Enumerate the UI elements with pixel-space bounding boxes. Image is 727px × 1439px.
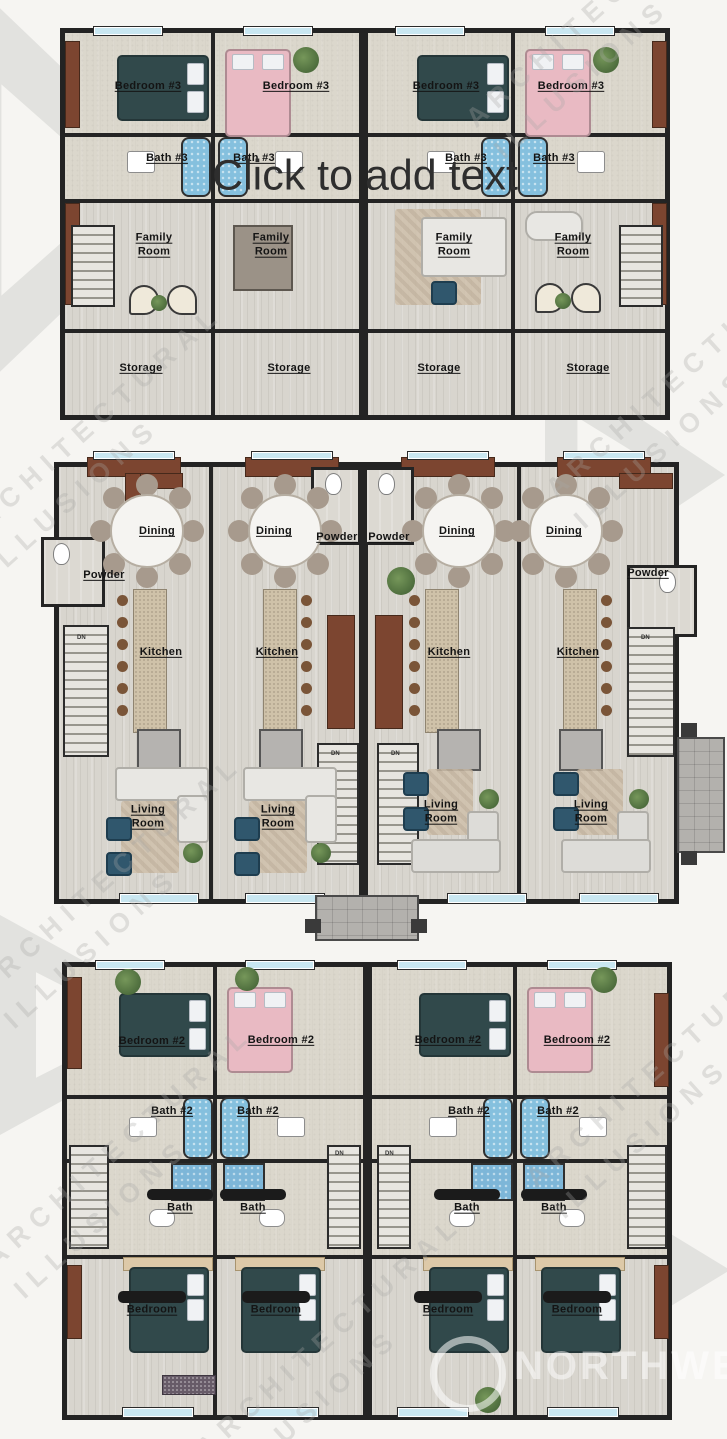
window xyxy=(407,451,489,460)
stair-direction: DN xyxy=(77,635,86,641)
sectional-chaise xyxy=(177,795,209,843)
room-label-powder: Powder xyxy=(368,530,410,544)
bathtub xyxy=(181,137,211,197)
plant xyxy=(629,789,649,809)
closet xyxy=(654,1265,669,1339)
room-label-living: LivingRoom xyxy=(261,803,295,832)
vanity-sink xyxy=(579,1117,607,1137)
label-smudge xyxy=(414,1291,482,1303)
window xyxy=(93,26,163,36)
room-label-bath2: Bath #2 xyxy=(537,1104,579,1118)
toilet xyxy=(325,473,342,495)
room-label-bedroom3: Bedroom #3 xyxy=(413,79,480,93)
hearth xyxy=(259,729,303,771)
room-label-dining: Dining xyxy=(256,524,292,538)
armchair-blue xyxy=(106,817,132,841)
room-label-living: LivingRoom xyxy=(131,803,165,832)
armchair-blue xyxy=(234,817,260,841)
plant xyxy=(293,47,319,73)
window xyxy=(397,960,467,970)
vanity-sink xyxy=(129,1117,157,1137)
plant-table xyxy=(555,293,571,309)
room-label-powder: Powder xyxy=(316,530,358,544)
room-label-storage: Storage xyxy=(566,361,609,375)
stair-direction: DN xyxy=(331,751,340,757)
pillow xyxy=(187,1274,204,1296)
pillow xyxy=(189,1028,206,1050)
room-label-living: LivingRoom xyxy=(574,798,608,827)
room-label-storage: Storage xyxy=(119,361,162,375)
pillow xyxy=(187,91,204,113)
label-smudge xyxy=(543,1291,611,1303)
plant xyxy=(591,967,617,993)
room-label-powder: Powder xyxy=(83,568,125,582)
room-label-bath2: Bath #2 xyxy=(151,1104,193,1118)
kitchen-island xyxy=(133,589,167,733)
bed xyxy=(419,993,511,1057)
armchair-blue xyxy=(234,852,260,876)
window xyxy=(447,893,527,904)
plant xyxy=(479,789,499,809)
porch-post xyxy=(681,723,697,737)
wall xyxy=(213,967,217,1415)
porch-pavers xyxy=(315,895,419,941)
sectional-chaise xyxy=(305,795,337,843)
staircase xyxy=(627,627,675,757)
text-placeholder[interactable]: Click to add text xyxy=(212,152,518,201)
armchair-blue xyxy=(403,772,429,796)
room-label-dining: Dining xyxy=(439,524,475,538)
pantry xyxy=(375,615,403,729)
pillow xyxy=(232,54,254,70)
toilet xyxy=(378,473,395,495)
sectional-sofa xyxy=(561,839,651,873)
staircase xyxy=(327,1145,361,1249)
stair-direction: DN xyxy=(335,1151,344,1157)
window xyxy=(395,26,465,36)
window xyxy=(119,893,199,904)
room-label-bedroom2: Bedroom #2 xyxy=(415,1033,482,1047)
pillow xyxy=(564,992,586,1008)
pillow xyxy=(187,63,204,85)
armchair-blue xyxy=(431,281,457,305)
plant xyxy=(387,567,415,595)
dresser xyxy=(162,1375,216,1395)
staircase xyxy=(71,225,115,307)
room-label-dining: Dining xyxy=(546,524,582,538)
window xyxy=(251,451,333,460)
room-label-bedroom3: Bedroom #3 xyxy=(263,79,330,93)
room-label-bath3: Bath #3 xyxy=(146,151,188,165)
plant xyxy=(115,969,141,995)
room-label-storage: Storage xyxy=(417,361,460,375)
room-label-kitchen: Kitchen xyxy=(140,645,182,659)
porch-post xyxy=(411,919,427,933)
vanity-sink xyxy=(577,151,605,173)
pillow xyxy=(489,1028,506,1050)
bathtub xyxy=(518,137,548,197)
staircase xyxy=(377,1145,411,1249)
room-label-bath2: Bath #2 xyxy=(237,1104,279,1118)
kitchen-island xyxy=(425,589,459,733)
room-label-bath2: Bath #2 xyxy=(448,1104,490,1118)
staircase xyxy=(63,625,109,757)
window xyxy=(545,26,615,36)
party-wall xyxy=(363,967,372,1415)
floor-plan-second[interactable]: DN DN Bedroom #2 Bedroom #2 xyxy=(62,962,672,1420)
label-smudge xyxy=(220,1189,286,1200)
pillow xyxy=(534,992,556,1008)
pillow xyxy=(489,1000,506,1022)
window xyxy=(547,1407,619,1418)
pillow xyxy=(187,1299,204,1321)
bar-stools xyxy=(409,595,420,606)
stair-direction: DN xyxy=(391,751,400,757)
armchair xyxy=(167,285,197,315)
bar-stools xyxy=(601,595,612,606)
wall xyxy=(67,1159,667,1163)
armchair-blue xyxy=(553,772,579,796)
staircase xyxy=(619,225,663,307)
porch-post xyxy=(305,919,321,933)
room-label-bath3: Bath #3 xyxy=(533,151,575,165)
toilet xyxy=(53,543,70,565)
window xyxy=(579,893,659,904)
pillow xyxy=(487,1274,504,1296)
room-label-kitchen: Kitchen xyxy=(557,645,599,659)
kitchen-island xyxy=(563,589,597,733)
window xyxy=(563,451,645,460)
entry-pavers xyxy=(677,737,725,853)
party-wall xyxy=(359,33,368,415)
kitchen-island xyxy=(263,589,297,733)
room-label-bedroom2: Bedroom #2 xyxy=(248,1033,315,1047)
label-smudge xyxy=(521,1189,587,1200)
closet xyxy=(67,977,82,1069)
plant xyxy=(183,843,203,863)
window xyxy=(122,1407,194,1418)
window xyxy=(245,960,315,970)
stair-direction: DN xyxy=(641,635,650,641)
wall xyxy=(209,467,213,899)
plant xyxy=(311,843,331,863)
window xyxy=(247,1407,319,1418)
room-label-family: FamilyRoom xyxy=(436,231,473,260)
editor-canvas: ARCHITECTURALILLUSIONS ARCHITECTURALILLU… xyxy=(0,0,727,1439)
plant xyxy=(475,1387,501,1413)
bay-window-base xyxy=(401,457,495,477)
room-label-bedroom2: Bedroom #2 xyxy=(544,1033,611,1047)
wall xyxy=(513,967,517,1415)
room-label-bedroom2: Bedroom #2 xyxy=(119,1034,186,1048)
hearth xyxy=(437,729,481,771)
wall xyxy=(211,33,215,415)
room-label-living: LivingRoom xyxy=(424,798,458,827)
bar-stools xyxy=(301,595,312,606)
window xyxy=(245,893,325,904)
window xyxy=(397,1407,469,1418)
pillow xyxy=(487,1299,504,1321)
wall xyxy=(65,329,665,333)
window xyxy=(243,26,313,36)
room-label-family: FamilyRoom xyxy=(253,231,290,260)
vanity-sink xyxy=(277,1117,305,1137)
closet xyxy=(67,1265,82,1339)
bar-stools xyxy=(117,595,128,606)
room-label-family: FamilyRoom xyxy=(136,231,173,260)
room-label-powder: Powder xyxy=(627,566,669,580)
pillow xyxy=(264,992,286,1008)
bed xyxy=(527,987,593,1073)
window xyxy=(93,451,175,460)
closet xyxy=(652,41,667,128)
room-label-kitchen: Kitchen xyxy=(256,645,298,659)
vanity-sink xyxy=(429,1117,457,1137)
pillow xyxy=(234,992,256,1008)
plant xyxy=(235,967,259,991)
plant xyxy=(593,47,619,73)
pillow xyxy=(487,91,504,113)
pillow xyxy=(532,54,554,70)
label-smudge xyxy=(147,1189,213,1200)
wall xyxy=(511,33,515,415)
hearth xyxy=(559,729,603,771)
plant-table xyxy=(151,295,167,311)
armchair xyxy=(571,283,601,313)
porch-post xyxy=(681,851,697,865)
label-smudge xyxy=(242,1291,310,1303)
wall xyxy=(517,467,521,899)
floor-plan-upper[interactable]: Bedroom #3 Bedroom #3 Bedroom #3 Bedroom… xyxy=(60,28,670,420)
room-label-kitchen: Kitchen xyxy=(428,645,470,659)
room-label-dining: Dining xyxy=(139,524,175,538)
pillow xyxy=(262,54,284,70)
staircase xyxy=(627,1145,667,1249)
room-label-bedroom3: Bedroom #3 xyxy=(538,79,605,93)
sectional-sofa xyxy=(411,839,501,873)
floor-plan-main[interactable]: DN DN DN DN xyxy=(54,462,679,904)
bed xyxy=(227,987,293,1073)
label-smudge xyxy=(118,1291,186,1303)
staircase xyxy=(69,1145,109,1249)
wall xyxy=(67,1095,667,1099)
pillow xyxy=(487,63,504,85)
pantry xyxy=(327,615,355,729)
armchair-blue xyxy=(106,852,132,876)
closet xyxy=(654,993,669,1087)
pillow xyxy=(562,54,584,70)
room-label-bedroom3: Bedroom #3 xyxy=(115,79,182,93)
closet xyxy=(65,41,80,128)
closet xyxy=(619,473,673,489)
room-label-storage: Storage xyxy=(267,361,310,375)
stair-direction: DN xyxy=(385,1151,394,1157)
pillow xyxy=(189,1000,206,1022)
hearth xyxy=(137,729,181,771)
room-label-family: FamilyRoom xyxy=(555,231,592,260)
label-smudge xyxy=(434,1189,500,1200)
